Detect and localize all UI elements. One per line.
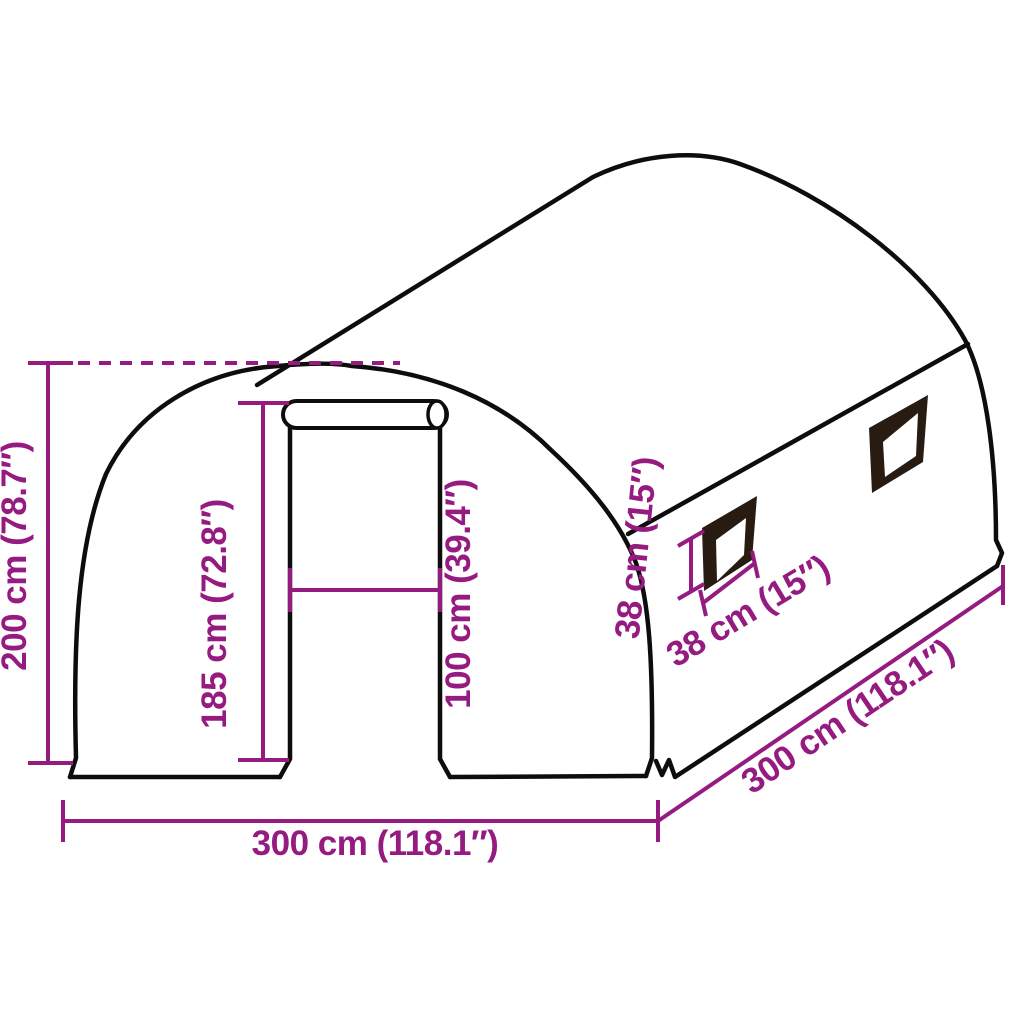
- label-total-height: 200 cm (78.7″): [0, 441, 34, 671]
- dimension-window-height: 38 cm (15″): [608, 455, 704, 641]
- dimension-door-height: 185 cm (72.8″): [195, 403, 289, 760]
- label-door-width: 100 cm (39.4″): [439, 479, 478, 709]
- front-base-right: [450, 776, 646, 777]
- label-door-height: 185 cm (72.8″): [195, 499, 234, 729]
- door-roll-top: [283, 401, 447, 428]
- dimension-door-width: 100 cm (39.4″): [290, 479, 478, 709]
- label-window-height: 38 cm (15″): [608, 455, 666, 641]
- greenhouse-dimension-diagram: 200 cm (78.7″) 185 cm (72.8″) 100 cm (39…: [0, 0, 1024, 1024]
- dimension-front-width: 300 cm (118.1″): [63, 800, 658, 863]
- dimension-window-width: 38 cm (15″): [660, 547, 837, 674]
- diagram-canvas: 200 cm (78.7″) 185 cm (72.8″) 100 cm (39…: [0, 0, 1024, 1024]
- dimension-side-depth: 300 cm (118.1″): [658, 565, 1003, 821]
- door-roll-end-cap: [428, 401, 446, 428]
- label-front-width: 300 cm (118.1″): [252, 824, 499, 863]
